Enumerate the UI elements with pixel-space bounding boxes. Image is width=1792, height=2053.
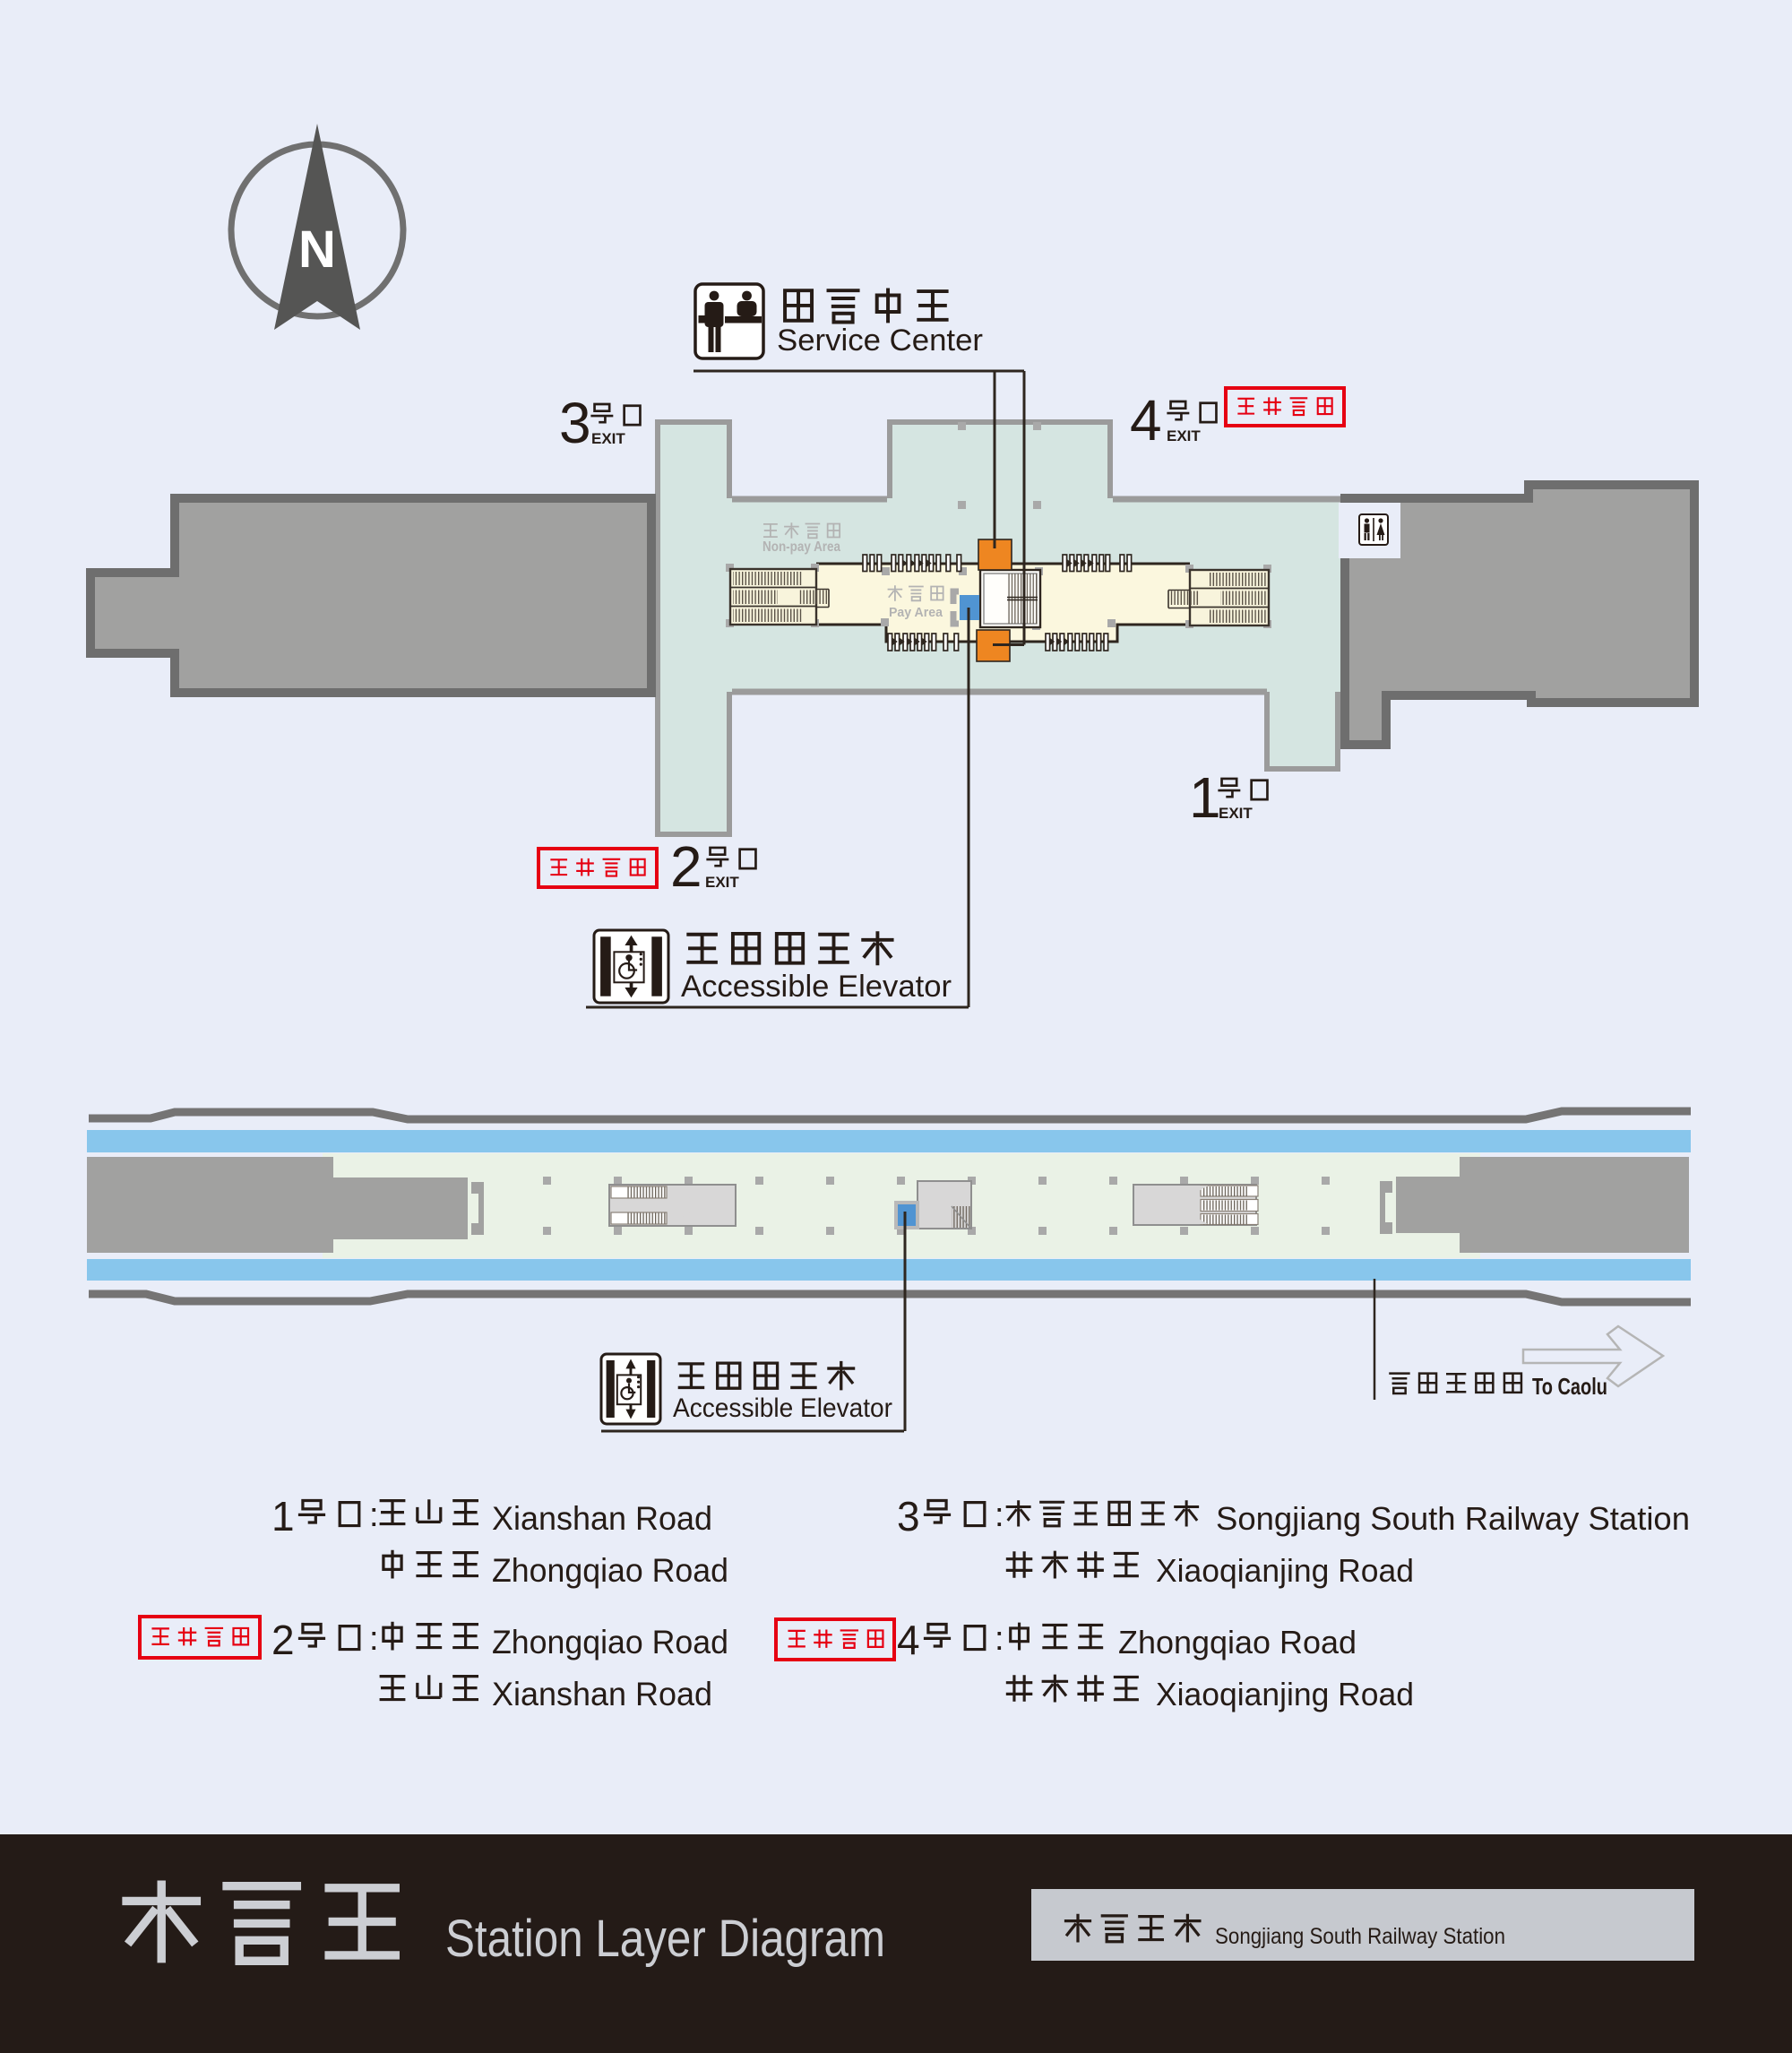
- svg-text:Pay Area: Pay Area: [889, 605, 943, 620]
- svg-text:Zhongqiao Road: Zhongqiao Road: [492, 1624, 728, 1661]
- svg-text:Xiaoqianjing Road: Xiaoqianjing Road: [1156, 1676, 1414, 1712]
- svg-text:Non-pay Area: Non-pay Area: [762, 539, 840, 555]
- svg-text::: :: [995, 1497, 1004, 1534]
- svg-text::: :: [369, 1620, 379, 1658]
- svg-text:Xiaoqianjing Road: Xiaoqianjing Road: [1156, 1552, 1414, 1589]
- svg-text:4: 4: [897, 1617, 920, 1663]
- svg-text:To Caolu: To Caolu: [1532, 1373, 1607, 1400]
- svg-text:Songjiang South Railway Statio: Songjiang South Railway Station: [1215, 1924, 1505, 1949]
- svg-text:Zhongqiao Road: Zhongqiao Road: [492, 1552, 728, 1589]
- svg-text:4: 4: [1130, 388, 1162, 453]
- svg-text:Songjiang South Railway Statio: Songjiang South Railway Station: [1216, 1500, 1690, 1537]
- svg-text:N: N: [298, 220, 336, 279]
- svg-text::: :: [995, 1620, 1004, 1658]
- svg-text:Accessible Elevator: Accessible Elevator: [673, 1393, 892, 1423]
- svg-text:2: 2: [670, 834, 702, 899]
- svg-text:EXIT: EXIT: [705, 874, 739, 891]
- svg-text:1: 1: [1189, 765, 1221, 830]
- svg-text::: :: [369, 1497, 379, 1534]
- svg-text:1: 1: [271, 1493, 295, 1540]
- svg-text:Xianshan Road: Xianshan Road: [492, 1676, 712, 1712]
- svg-text:3: 3: [559, 391, 591, 455]
- svg-text:Station Layer Diagram: Station Layer Diagram: [445, 1910, 885, 1968]
- svg-text:2: 2: [271, 1617, 295, 1663]
- svg-text:Accessible Elevator: Accessible Elevator: [681, 970, 952, 1004]
- svg-text:EXIT: EXIT: [1219, 805, 1253, 822]
- svg-text:Service Center: Service Center: [777, 323, 983, 358]
- svg-text:3: 3: [897, 1493, 920, 1540]
- svg-text:EXIT: EXIT: [1167, 427, 1201, 444]
- svg-text:Xianshan Road: Xianshan Road: [492, 1500, 712, 1537]
- svg-text:Zhongqiao Road: Zhongqiao Road: [1118, 1624, 1357, 1661]
- svg-text:EXIT: EXIT: [591, 430, 625, 447]
